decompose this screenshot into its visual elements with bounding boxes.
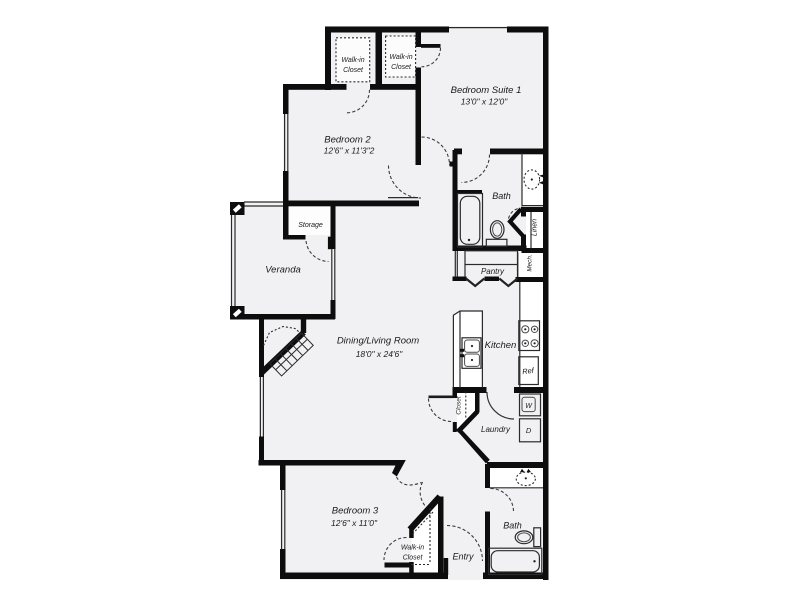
svg-text:Closet: Closet (343, 67, 364, 74)
svg-text:Closet: Closet (391, 64, 412, 71)
svg-text:Entry: Entry (452, 552, 474, 562)
svg-text:Laundry: Laundry (481, 425, 511, 434)
svg-text:Bedroom 3: Bedroom 3 (332, 506, 379, 517)
svg-text:Walk-in: Walk-in (389, 54, 412, 61)
svg-text:Walk-in: Walk-in (341, 57, 364, 64)
svg-text:Bedroom Suite 1: Bedroom Suite 1 (451, 85, 522, 96)
svg-text:Bath: Bath (503, 521, 522, 531)
svg-text:12'6" x 11'3"2: 12'6" x 11'3"2 (324, 146, 375, 156)
svg-text:13'0" x 12'0": 13'0" x 12'0" (461, 97, 509, 107)
svg-text:Veranda: Veranda (265, 265, 301, 276)
svg-text:Dining/Living Room: Dining/Living Room (337, 336, 419, 347)
svg-text:Kitchen: Kitchen (485, 340, 517, 351)
svg-text:Bath: Bath (492, 191, 511, 201)
svg-text:Linen: Linen (532, 219, 539, 236)
svg-text:Closet: Closet (456, 395, 463, 415)
svg-text:Mech.: Mech. (527, 254, 534, 271)
svg-text:Storage: Storage (298, 222, 323, 229)
svg-text:Pantry: Pantry (481, 267, 505, 276)
svg-text:12'6" x 11'0": 12'6" x 11'0" (331, 518, 378, 528)
svg-text:Bedroom 2: Bedroom 2 (324, 135, 371, 146)
svg-text:18'0" x 24'6": 18'0" x 24'6" (356, 349, 404, 359)
svg-text:Closet: Closet (403, 555, 424, 562)
svg-text:D: D (526, 426, 532, 435)
svg-text:Walk-in: Walk-in (401, 545, 424, 552)
svg-text:Ref: Ref (522, 366, 536, 376)
